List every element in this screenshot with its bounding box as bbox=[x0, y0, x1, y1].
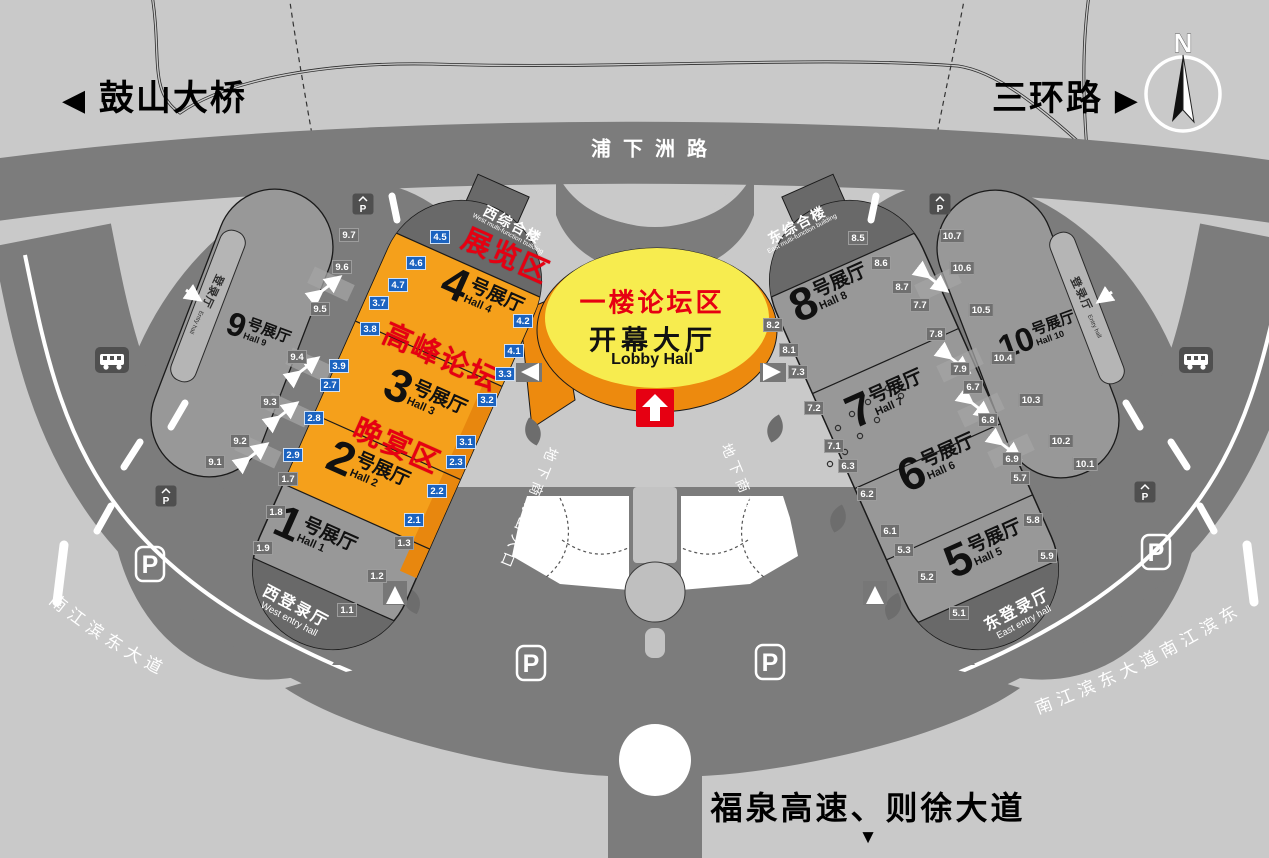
svg-text:P: P bbox=[163, 496, 170, 507]
compass-north-label: N bbox=[1174, 28, 1193, 58]
plaza-south-walk bbox=[645, 628, 665, 658]
compass-icon: N bbox=[1146, 28, 1220, 131]
site-map-svg: N P P P P bbox=[0, 0, 1269, 858]
lobby-hall-shape bbox=[545, 248, 769, 388]
bus-stop-icon-east bbox=[1179, 347, 1213, 373]
site-map: N P P P P bbox=[0, 0, 1269, 858]
bus-stop-icon-west bbox=[95, 347, 129, 373]
svg-text:P: P bbox=[762, 649, 779, 677]
svg-text:P: P bbox=[523, 650, 540, 678]
main-entrance-sign bbox=[636, 389, 674, 427]
svg-text:P: P bbox=[142, 551, 159, 579]
roundabout-south bbox=[619, 724, 691, 796]
plaza-fountain bbox=[625, 562, 685, 622]
svg-text:P: P bbox=[1142, 492, 1149, 503]
svg-text:P: P bbox=[937, 204, 944, 215]
svg-text:P: P bbox=[360, 204, 367, 215]
svg-text:P: P bbox=[1148, 539, 1165, 567]
plaza-center-walk bbox=[633, 487, 677, 563]
